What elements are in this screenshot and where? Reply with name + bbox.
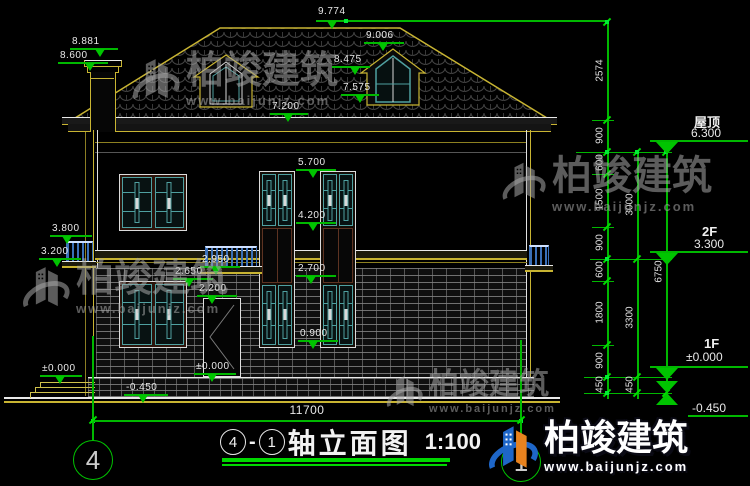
watermark-brand: 柏竣建筑 bbox=[76, 260, 228, 298]
watermark-brand: 柏竣建筑 bbox=[552, 156, 712, 196]
window-sash bbox=[122, 177, 152, 228]
level-arrow bbox=[138, 395, 148, 403]
dim-value: 3300 bbox=[625, 296, 636, 340]
grip bbox=[344, 19, 348, 23]
brand-logo-icon bbox=[383, 370, 423, 416]
grip bbox=[605, 375, 609, 379]
title-axis-start: 4 bbox=[220, 429, 246, 455]
watermark-url: www.baijunjz.com bbox=[552, 199, 712, 214]
level-8881: 8.881 bbox=[72, 36, 100, 47]
frieze-line bbox=[95, 142, 527, 143]
brand-logo-icon bbox=[18, 260, 70, 318]
window-sash bbox=[278, 174, 292, 226]
roof-level-line bbox=[95, 152, 527, 153]
brand-logo-icon bbox=[128, 52, 180, 110]
stair-window-left bbox=[259, 171, 295, 348]
brand-logo-icon bbox=[486, 420, 538, 478]
f2-elev: 3.300 bbox=[694, 237, 724, 251]
stair-window-right bbox=[320, 171, 356, 348]
level-neg450-left: -0.450 bbox=[126, 382, 157, 393]
ground-elev: -0.450 bbox=[692, 401, 726, 415]
level-zero-door: ±0.000 bbox=[196, 361, 230, 372]
grid-bubble-label: 4 bbox=[86, 445, 100, 476]
window-sash bbox=[339, 285, 353, 345]
window-sash bbox=[278, 285, 292, 345]
watermark: 柏竣建筑 www.baijunjz.com bbox=[128, 52, 338, 110]
grid-line-4 bbox=[92, 336, 94, 440]
level-4200: 4.200 bbox=[298, 210, 326, 221]
dim-value: 450 bbox=[625, 363, 636, 407]
level-arrow bbox=[62, 236, 72, 244]
ground-marker bbox=[656, 393, 678, 405]
level-9006: 9.006 bbox=[366, 30, 394, 41]
grip bbox=[605, 20, 609, 24]
window-sash bbox=[262, 285, 276, 345]
flag-arrow bbox=[656, 142, 678, 154]
chimney-band bbox=[90, 78, 114, 79]
level-arrow bbox=[308, 341, 318, 349]
grip bbox=[605, 257, 609, 261]
title-underline-2 bbox=[222, 464, 447, 466]
title-axis-end: 1 bbox=[259, 429, 285, 455]
dim-value: 450 bbox=[595, 363, 606, 407]
dim-value: 1800 bbox=[595, 291, 606, 335]
balcony-railing-right bbox=[529, 245, 549, 265]
f1-label: 1F bbox=[704, 336, 719, 351]
level-2700: 2.700 bbox=[298, 263, 326, 274]
level-zero-left: ±0.000 bbox=[42, 363, 76, 374]
window-sash bbox=[262, 174, 276, 226]
drawing-title: 4 - 1 轴立面图 1:100 bbox=[220, 427, 481, 457]
watermark-url: www.baijunjz.com bbox=[544, 459, 688, 474]
level-line bbox=[316, 20, 608, 22]
roof-elev: 6.300 bbox=[691, 126, 721, 140]
level-line bbox=[58, 62, 108, 64]
window-spandrel bbox=[262, 228, 292, 283]
brand-logo-color: 柏竣建筑 www.baijunjz.com bbox=[486, 420, 688, 478]
dim-value: 2574 bbox=[595, 49, 606, 93]
watermark-brand: 柏竣建筑 bbox=[544, 420, 688, 456]
level-arrow bbox=[207, 374, 217, 382]
watermark: 柏竣建筑 www.baijunjz.com bbox=[498, 156, 712, 214]
overall-width: 11700 bbox=[287, 403, 327, 417]
level-3800: 3.800 bbox=[52, 223, 80, 234]
watermark-url: www.baijunjz.com bbox=[186, 93, 338, 108]
brand-logo-icon bbox=[498, 156, 546, 210]
grid-bubble-4: 4 bbox=[73, 440, 113, 480]
watermark-brand: 柏竣建筑 bbox=[429, 370, 556, 400]
dim-value: 600 bbox=[595, 248, 606, 292]
level-7575: 7.575 bbox=[343, 82, 371, 93]
grip bbox=[605, 391, 609, 395]
level-arrow bbox=[308, 223, 318, 231]
level-arrow bbox=[327, 21, 337, 29]
chimney-body bbox=[90, 72, 116, 132]
level-arrow bbox=[355, 95, 365, 103]
watermark-url: www.baijunjz.com bbox=[76, 301, 228, 316]
eave-fascia-lower bbox=[68, 124, 551, 132]
window-2f-left bbox=[119, 174, 187, 231]
level-8475: 8.475 bbox=[334, 54, 362, 65]
level-3200: 3.200 bbox=[41, 246, 69, 257]
level-0900: 0.900 bbox=[300, 328, 328, 339]
level-9774: 9.774 bbox=[318, 6, 346, 17]
watermark-url: www.baijunjz.com bbox=[429, 403, 556, 415]
level-line bbox=[298, 340, 338, 342]
level-arrow bbox=[350, 67, 360, 75]
level-5700: 5.700 bbox=[298, 157, 326, 168]
watermark-brand: 柏竣建筑 bbox=[186, 52, 338, 90]
level-arrow bbox=[95, 49, 105, 57]
watermark: 柏竣建筑 www.baijunjz.com bbox=[383, 370, 556, 416]
level-arrow bbox=[85, 63, 95, 71]
level-arrow bbox=[283, 114, 293, 122]
flag-arrow bbox=[656, 368, 678, 380]
level-line bbox=[296, 275, 336, 277]
title-separator: - bbox=[249, 431, 256, 454]
title-scale: 1:100 bbox=[425, 429, 481, 455]
balcony-slab-right bbox=[525, 265, 553, 272]
flag-arrow bbox=[656, 253, 678, 265]
level-arrow bbox=[308, 170, 318, 178]
window-sash bbox=[339, 174, 353, 226]
watermark: 柏竣建筑 www.baijunjz.com bbox=[18, 260, 228, 318]
ground-marker bbox=[656, 381, 678, 393]
flag-line bbox=[688, 415, 748, 417]
elevation-drawing: 9.774 8.881 8.600 9.006 8.475 7.575 7.20… bbox=[0, 0, 750, 486]
window-sash bbox=[155, 177, 185, 228]
level-arrow bbox=[306, 276, 316, 284]
step-3 bbox=[30, 392, 95, 398]
level-arrow bbox=[55, 376, 65, 384]
dormer-right bbox=[356, 46, 430, 108]
level-8600: 8.600 bbox=[60, 50, 88, 61]
title-underline bbox=[222, 458, 450, 462]
title-text: 轴立面图 bbox=[288, 422, 412, 462]
f1-elev: ±0.000 bbox=[686, 350, 723, 364]
level-arrow bbox=[378, 43, 388, 51]
